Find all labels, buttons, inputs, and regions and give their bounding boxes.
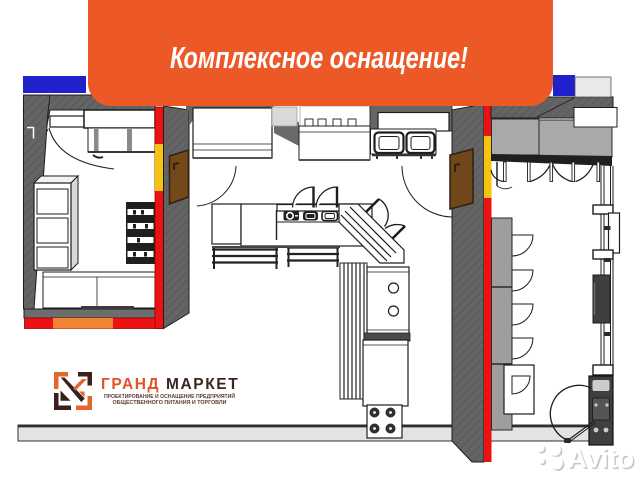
svg-text:ПРОЕКТИРОВАНИЕ И ОСНАЩЕНИЕ ПРЕ: ПРОЕКТИРОВАНИЕ И ОСНАЩЕНИЕ ПРЕДПРИЯТИЙ xyxy=(104,392,235,400)
svg-text:ОБЩЕСТВЕННОГО ПИТАНИЯ И ТОРГОВ: ОБЩЕСТВЕННОГО ПИТАНИЯ И ТОРГОВЛИ xyxy=(113,400,227,406)
svg-text:Комплексное оснащение!: Комплексное оснащение! xyxy=(170,40,468,75)
svg-text:МАРКЕТ: МАРКЕТ xyxy=(166,376,239,393)
svg-text:Avito: Avito xyxy=(568,444,635,474)
svg-text:ГРАНД: ГРАНД xyxy=(101,376,160,393)
